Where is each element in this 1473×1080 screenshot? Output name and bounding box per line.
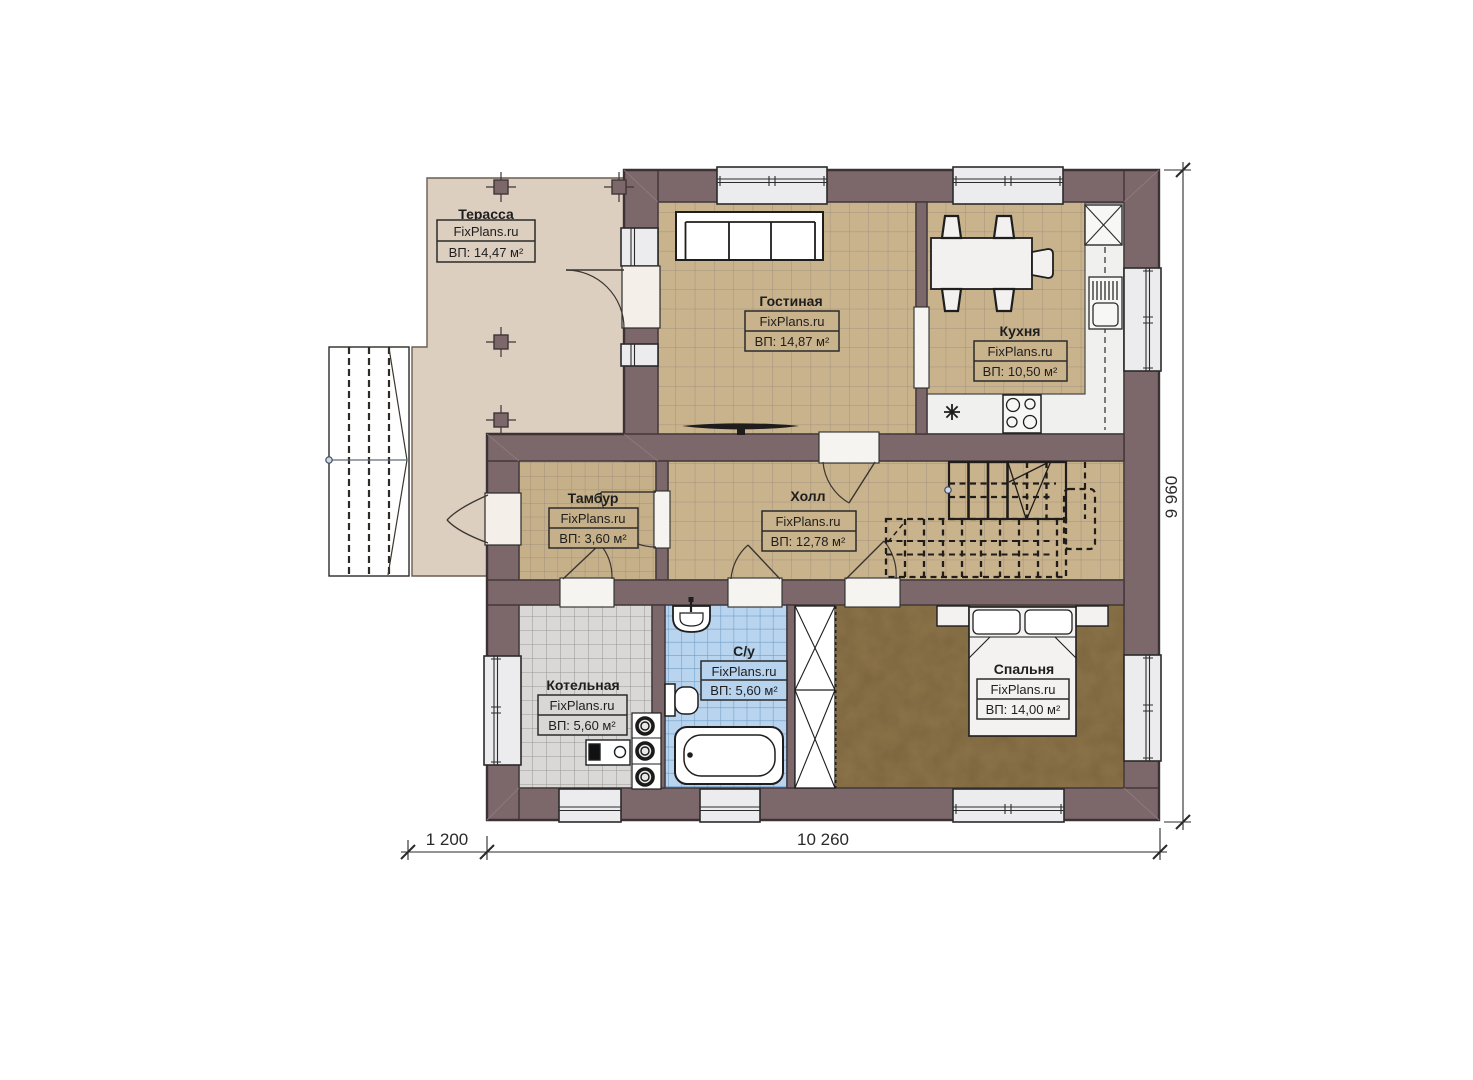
svg-text:С/у: С/у xyxy=(733,643,755,659)
svg-text:FixPlans.ru: FixPlans.ru xyxy=(990,682,1055,697)
svg-text:1 200: 1 200 xyxy=(426,830,469,849)
svg-text:Гостиная: Гостиная xyxy=(759,293,822,309)
svg-text:Кухня: Кухня xyxy=(1000,323,1041,339)
svg-text:ВП: 14,87 м²: ВП: 14,87 м² xyxy=(755,334,830,349)
svg-text:FixPlans.ru: FixPlans.ru xyxy=(775,514,840,529)
svg-text:Холл: Холл xyxy=(790,488,825,504)
svg-text:ВП: 5,60 м²: ВП: 5,60 м² xyxy=(710,683,778,698)
svg-text:9 960: 9 960 xyxy=(1162,476,1181,519)
svg-text:FixPlans.ru: FixPlans.ru xyxy=(759,314,824,329)
svg-text:Котельная: Котельная xyxy=(546,677,619,693)
svg-text:FixPlans.ru: FixPlans.ru xyxy=(560,511,625,526)
svg-text:FixPlans.ru: FixPlans.ru xyxy=(987,344,1052,359)
svg-text:FixPlans.ru: FixPlans.ru xyxy=(549,698,614,713)
svg-text:ВП: 14,47 м²: ВП: 14,47 м² xyxy=(449,245,524,260)
svg-text:ВП: 10,50 м²: ВП: 10,50 м² xyxy=(983,364,1058,379)
svg-text:Спальня: Спальня xyxy=(994,661,1054,677)
svg-text:ВП: 12,78 м²: ВП: 12,78 м² xyxy=(771,534,846,549)
svg-text:ВП: 14,00 м²: ВП: 14,00 м² xyxy=(986,702,1061,717)
svg-text:Тамбур: Тамбур xyxy=(568,490,619,506)
svg-text:ВП: 3,60 м²: ВП: 3,60 м² xyxy=(559,531,627,546)
svg-text:10 260: 10 260 xyxy=(797,830,849,849)
svg-text:FixPlans.ru: FixPlans.ru xyxy=(453,224,518,239)
svg-text:ВП: 5,60 м²: ВП: 5,60 м² xyxy=(548,718,616,733)
svg-text:FixPlans.ru: FixPlans.ru xyxy=(711,664,776,679)
